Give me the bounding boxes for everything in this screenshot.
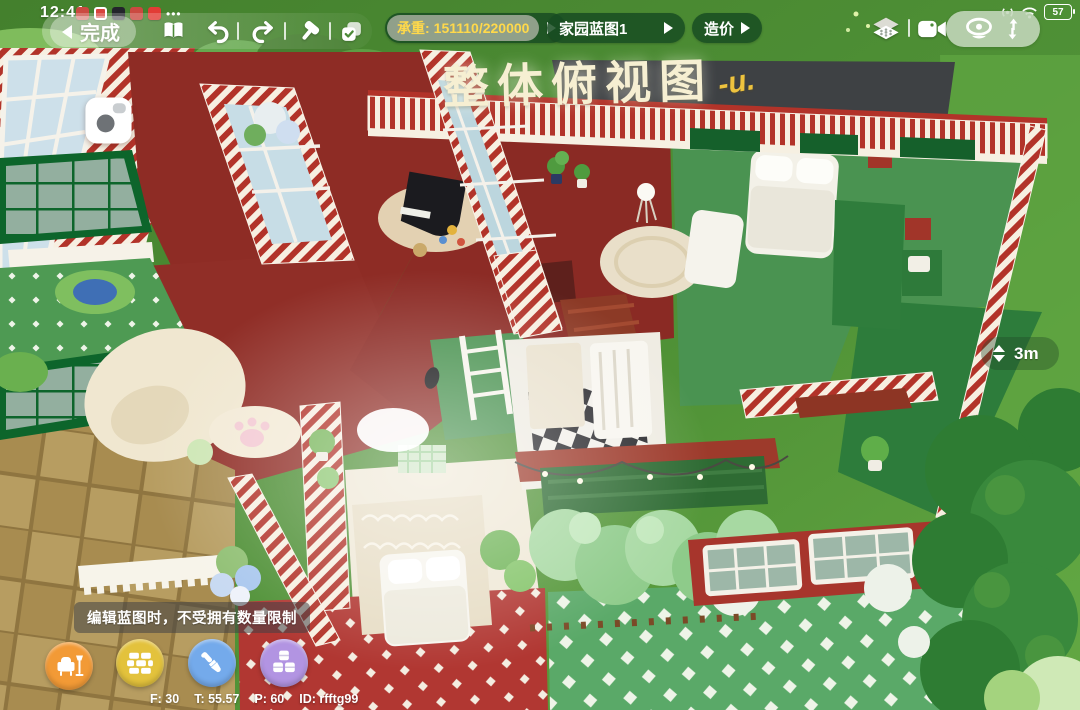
cost-label: 造价 <box>704 18 734 39</box>
up-arrow-icon[interactable] <box>993 345 1005 352</box>
expand-chevron-icon <box>664 22 673 34</box>
load-label: 承重: <box>397 18 430 38</box>
session-id: ID: rfftg99 <box>299 692 358 706</box>
blueprint-library-button[interactable] <box>160 18 186 44</box>
hint-text: 编辑蓝图时，不受拥有数量限制 <box>87 611 297 627</box>
battery-indicator: 57 <box>1044 4 1072 20</box>
fps-stat: F: 30 <box>150 692 179 706</box>
hammer-icon <box>297 19 322 44</box>
done-label: 完成 <box>80 17 120 46</box>
blocks-category-button[interactable] <box>260 639 308 687</box>
battery-percent: 57 <box>1052 7 1063 18</box>
redo-button[interactable] <box>249 18 275 44</box>
furniture-category-button[interactable] <box>45 642 93 690</box>
divider <box>329 22 331 40</box>
debug-stats: F: 30 T: 55.57 P: 60 ID: rfftg99 <box>150 692 358 706</box>
divider <box>237 22 239 40</box>
paint-category-button[interactable] <box>188 639 236 687</box>
down-arrow-icon[interactable] <box>993 355 1005 362</box>
t-stat: T: 55.57 <box>194 692 239 706</box>
updown-arrows-icon <box>1004 17 1022 41</box>
webcam-eye-icon <box>964 16 994 42</box>
load-value: 151110/220000 <box>434 20 530 36</box>
height-value: 3m <box>1014 344 1039 364</box>
layers-cube-icon <box>870 15 902 43</box>
bricks-icon <box>126 649 154 677</box>
undo-icon <box>206 19 231 44</box>
floor-lamp <box>637 183 655 201</box>
build-tool-button[interactable] <box>296 18 322 44</box>
camera-marker-button[interactable] <box>84 96 133 145</box>
ceiling-light <box>357 408 429 452</box>
build-category-button[interactable] <box>116 639 164 687</box>
camera-mode-button[interactable] <box>915 14 949 44</box>
divider <box>284 22 286 40</box>
divider <box>908 19 910 37</box>
floor-height-control[interactable]: 3m <box>981 337 1059 370</box>
copy-check-icon <box>339 19 364 44</box>
camera-icon <box>84 96 133 145</box>
copy-select-button[interactable] <box>338 18 364 44</box>
sofa <box>683 209 745 290</box>
observe-mode-button[interactable] <box>946 11 1040 47</box>
bed <box>745 149 840 259</box>
blueprint-selector[interactable]: 家园蓝图1 <box>547 13 685 43</box>
view-mode-button[interactable] <box>869 14 903 44</box>
hint-toast: 编辑蓝图时，不受拥有数量限制 <box>74 602 310 633</box>
expand-chevron-icon <box>741 22 750 34</box>
game-screen: 整体俯视图 -u. 12:41 ••• 57 完成 <box>0 0 1080 710</box>
load-capacity-pill[interactable]: 承重: 151110/220000 <box>385 13 566 43</box>
p-stat: P: 60 <box>254 692 284 706</box>
cost-button[interactable]: 造价 <box>692 13 762 43</box>
load-capacity-chip: 承重: 151110/220000 <box>387 15 539 41</box>
done-button[interactable]: 完成 <box>50 16 136 47</box>
redo-icon <box>250 19 275 44</box>
back-chevron-icon <box>62 25 72 39</box>
armchair-lamp-icon <box>54 652 84 680</box>
boxes-icon <box>270 649 298 677</box>
paint-brush-icon <box>198 649 226 677</box>
height-stepper-icon[interactable] <box>993 345 1005 362</box>
undo-button[interactable] <box>205 18 231 44</box>
blueprint-name: 家园蓝图1 <box>559 18 627 39</box>
video-camera-icon <box>917 17 947 41</box>
